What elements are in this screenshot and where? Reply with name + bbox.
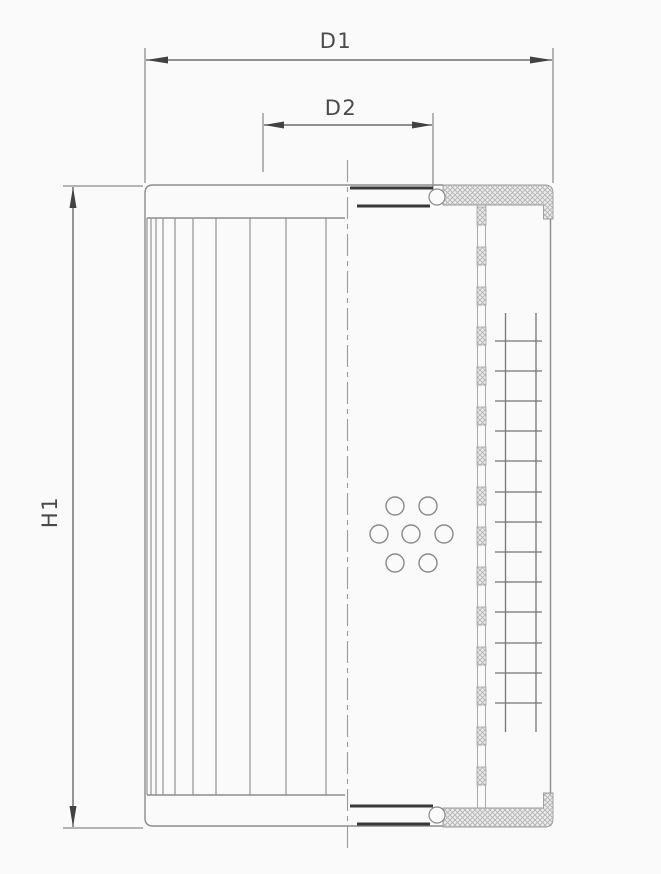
core-hatch-segment	[477, 647, 486, 665]
perforation-hole	[419, 497, 437, 515]
core-hatch-segment	[477, 607, 486, 625]
d1-arrow-left	[146, 57, 168, 64]
core-hatch-segment	[477, 287, 486, 305]
d2-arrow-right	[412, 122, 432, 129]
core-tube-hatch-segments	[477, 207, 486, 785]
perforation-hole	[370, 525, 388, 543]
d1-label: D1	[320, 29, 353, 53]
end-cap-hatching	[429, 185, 553, 827]
filter-element-drawing: D1 D2 H1	[0, 0, 661, 874]
core-tube	[477, 205, 486, 808]
d2-label: D2	[325, 96, 358, 120]
bottom-cap-hatch-band	[443, 793, 553, 827]
core-hatch-segment	[477, 687, 486, 705]
bottom-seal-ring	[429, 807, 445, 823]
core-hatch-segment	[477, 247, 486, 265]
top-seal-ring	[429, 189, 445, 205]
d2-arrow-left	[264, 122, 284, 129]
perforation-hole	[419, 554, 437, 572]
perforation-hole	[435, 525, 453, 543]
body-outline	[145, 185, 443, 826]
core-hatch-segment	[477, 407, 486, 425]
technical-drawing-page: D1 D2 H1	[0, 0, 661, 874]
core-hatch-segment	[477, 527, 486, 545]
pleated-media	[147, 218, 326, 795]
perforation-hole	[386, 554, 404, 572]
top-cap-hatch-band	[443, 185, 553, 219]
d1-arrow-right	[530, 57, 552, 64]
element-body	[145, 185, 443, 826]
h1-arrow-bottom	[70, 806, 77, 827]
h1-dimension: H1	[38, 186, 143, 828]
h1-label: H1	[38, 496, 62, 528]
core-hatch-segment	[477, 727, 486, 745]
perforation-holes	[370, 497, 453, 572]
core-hatch-segment	[477, 767, 486, 785]
core-hatch-segment	[477, 567, 486, 585]
support-mesh	[495, 313, 542, 732]
core-hatch-segment	[477, 367, 486, 385]
core-hatch-segment	[477, 327, 486, 345]
core-hatch-segment	[477, 487, 486, 505]
core-hatch-segment	[477, 447, 486, 465]
core-hatch-segment	[477, 207, 486, 225]
h1-arrow-top	[70, 187, 77, 208]
perforation-hole	[386, 497, 404, 515]
inner-tube-section	[350, 188, 433, 824]
perforation-hole	[402, 525, 420, 543]
